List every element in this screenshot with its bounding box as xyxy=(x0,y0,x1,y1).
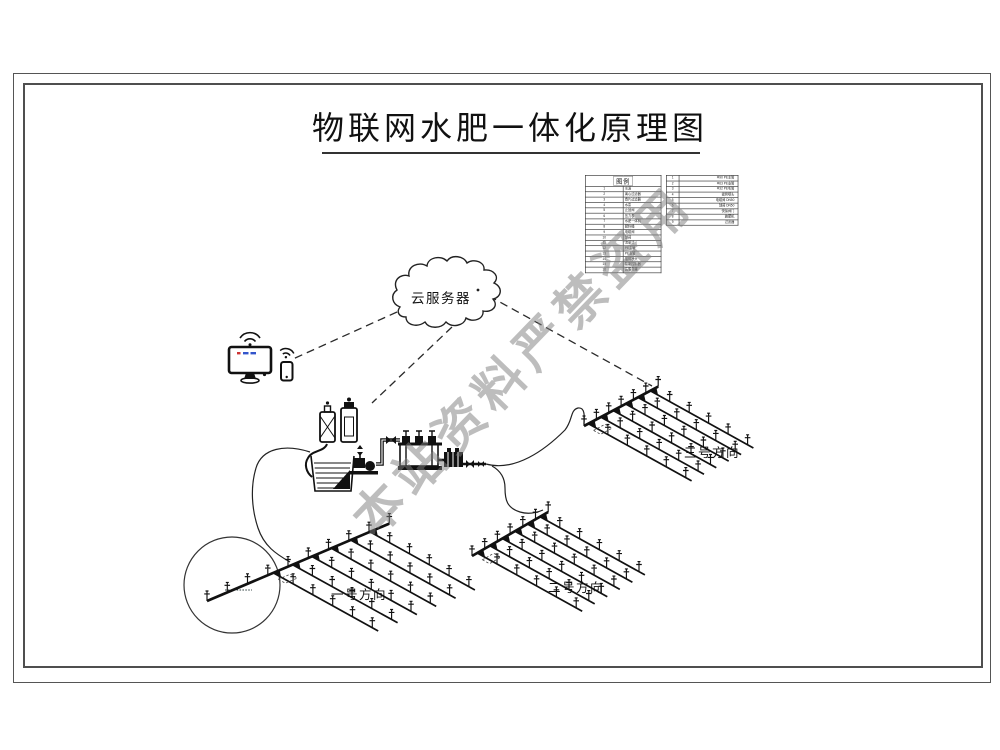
main-pipe xyxy=(376,440,400,464)
pipeline-to-field1 xyxy=(252,448,310,562)
link-cloud-to-phone xyxy=(293,312,397,359)
fertilizer-tank-icon xyxy=(341,398,357,443)
spec-row-number: 9 xyxy=(666,220,679,226)
screen-blue-dash xyxy=(251,352,257,354)
legend-row-number: 16 xyxy=(585,267,623,272)
monitor-icon xyxy=(229,333,271,383)
cloud-server-label: 云服务器 xyxy=(411,291,471,306)
pump-icon xyxy=(350,445,378,475)
lateral-pipes xyxy=(273,532,475,631)
legend-row: 16 云服务器 xyxy=(585,267,661,272)
legend-table: 图例 1 水源 2 离心过滤器 xyxy=(585,175,661,273)
phone-home-button xyxy=(286,376,288,378)
field-grid-1-label: 一号方向 xyxy=(331,587,387,602)
pipeline-to-field2 xyxy=(492,466,543,513)
cloud-server-icon: 云服务器 xyxy=(393,257,501,328)
spec-table: 1 Φ90 PE主管 2 Φ63 PE支管 3 Φ32 PE毛管 xyxy=(666,175,738,226)
wifi-icon xyxy=(240,333,260,338)
filter-icon xyxy=(444,448,463,467)
link-cloud-to-station xyxy=(372,327,452,403)
fertigation-station xyxy=(306,398,486,492)
schematic-page: 物联网水肥一体化原理图 云服务器 xyxy=(0,0,1000,750)
field-grid-2: 二号方向 xyxy=(469,502,645,611)
monitor-base xyxy=(241,378,259,383)
field-grid-2-label: 二号方向 xyxy=(548,580,604,595)
screen-red-dash xyxy=(237,352,241,354)
spec-row: 9 过滤器 xyxy=(666,220,738,226)
spec-row-name: 过滤器 xyxy=(679,220,738,226)
phone-icon xyxy=(279,347,295,380)
monitor-screen xyxy=(229,347,271,373)
suction-pipe xyxy=(306,444,327,477)
fertigation-machine-icon xyxy=(398,431,442,470)
water-source-icon xyxy=(311,456,354,491)
legend-header: 图例 xyxy=(585,175,661,186)
legend-row-name: 云服务器 xyxy=(623,267,661,272)
spec-table-wrap: 1 Φ90 PE主管 2 Φ63 PE支管 3 Φ32 PE毛管 xyxy=(666,175,882,326)
wifi-icon xyxy=(283,352,291,355)
valve-box-annotation xyxy=(278,574,297,583)
wifi-icon xyxy=(245,339,256,342)
fertilizer-tank-icon xyxy=(320,401,335,442)
valve-icon xyxy=(386,436,396,444)
screen-blue-dash xyxy=(243,352,249,354)
cloud-dot xyxy=(477,289,480,292)
field-grid-1: 一号方向 xyxy=(204,514,475,631)
valve-box-annotation xyxy=(483,553,501,563)
detail-callout-circle xyxy=(184,537,280,633)
pipeline-to-field3 xyxy=(486,408,584,466)
